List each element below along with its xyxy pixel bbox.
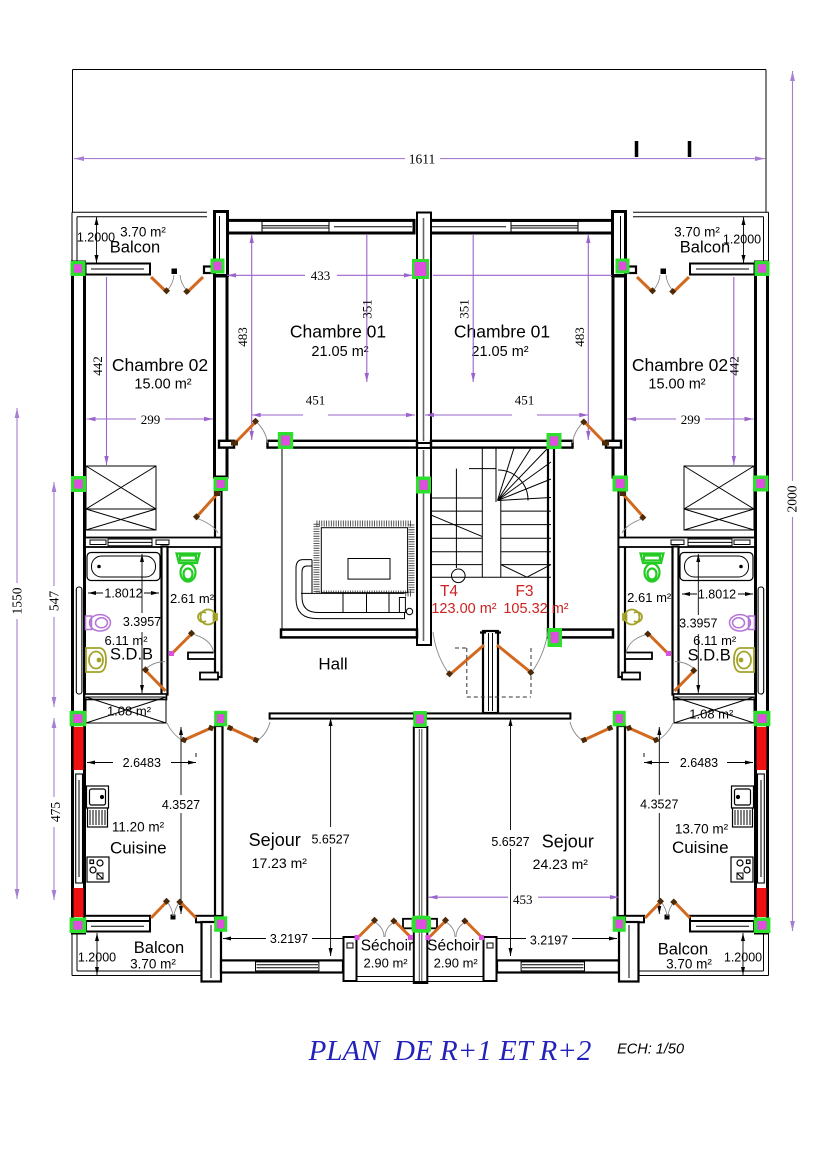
svg-text:3.70 m²: 3.70 m² <box>130 957 176 972</box>
svg-text:4.3527: 4.3527 <box>162 798 200 812</box>
svg-text:13.70 m²: 13.70 m² <box>675 822 729 837</box>
svg-text:475: 475 <box>48 802 63 823</box>
svg-text:Chambre 02: Chambre 02 <box>632 355 728 375</box>
svg-text:453: 453 <box>513 892 533 907</box>
svg-text:Balcon: Balcon <box>134 939 184 957</box>
svg-text:Séchoir: Séchoir <box>361 938 414 955</box>
svg-text:21.05 m²: 21.05 m² <box>471 344 528 360</box>
svg-text:1.8012: 1.8012 <box>104 587 142 601</box>
svg-text:S.D.B: S.D.B <box>110 646 153 664</box>
svg-text:Chambre 02: Chambre 02 <box>112 355 208 375</box>
svg-text:Séchoir: Séchoir <box>427 938 480 955</box>
svg-text:Cuisine: Cuisine <box>110 839 167 858</box>
svg-text:1550: 1550 <box>10 587 25 614</box>
svg-text:351: 351 <box>360 299 375 319</box>
svg-text:15.00 m²: 15.00 m² <box>134 377 191 393</box>
svg-text:Chambre 01: Chambre 01 <box>454 322 550 342</box>
svg-text:PLAN DE R+1 ET R+2: PLAN DE R+1 ET R+2 <box>308 1035 592 1067</box>
svg-text:105.32 m²: 105.32 m² <box>503 601 568 617</box>
svg-text:433: 433 <box>311 268 331 283</box>
svg-text:451: 451 <box>515 393 535 408</box>
svg-text:3.70 m²: 3.70 m² <box>674 225 720 240</box>
svg-text:11.20 m²: 11.20 m² <box>112 820 165 835</box>
svg-text:2.6483: 2.6483 <box>123 756 161 770</box>
svg-text:ECH: 1/50: ECH: 1/50 <box>617 1042 684 1058</box>
svg-text:3.70 m²: 3.70 m² <box>666 957 712 972</box>
svg-text:Balcon: Balcon <box>110 239 160 257</box>
svg-text:442: 442 <box>726 356 741 376</box>
svg-text:24.23 m²: 24.23 m² <box>533 856 589 872</box>
svg-text:T4: T4 <box>440 583 458 600</box>
svg-text:Hall: Hall <box>318 655 347 674</box>
svg-text:2.6483: 2.6483 <box>680 756 718 770</box>
svg-text:1611: 1611 <box>409 152 436 167</box>
svg-text:3.3957: 3.3957 <box>123 615 161 629</box>
svg-text:Sejour: Sejour <box>542 832 594 852</box>
svg-text:4.3527: 4.3527 <box>640 798 678 812</box>
svg-text:5.6527: 5.6527 <box>491 835 529 849</box>
svg-text:2.90 m²: 2.90 m² <box>364 956 409 971</box>
svg-text:Cuisine: Cuisine <box>672 838 729 857</box>
svg-text:299: 299 <box>141 412 161 427</box>
svg-text:2.90 m²: 2.90 m² <box>434 956 479 971</box>
svg-text:2.61 m²: 2.61 m² <box>170 591 215 606</box>
svg-text:17.23 m²: 17.23 m² <box>252 855 308 871</box>
svg-text:1.2000: 1.2000 <box>723 233 761 247</box>
svg-text:1.2000: 1.2000 <box>77 231 115 245</box>
svg-text:21.05 m²: 21.05 m² <box>311 344 368 360</box>
svg-text:3.70 m²: 3.70 m² <box>120 225 166 240</box>
svg-text:1.08 m²: 1.08 m² <box>689 707 734 722</box>
svg-text:483: 483 <box>572 327 587 347</box>
svg-text:1.2000: 1.2000 <box>724 951 762 965</box>
svg-text:5.6527: 5.6527 <box>311 832 349 846</box>
svg-text:123.00 m²: 123.00 m² <box>431 601 496 617</box>
svg-text:15.00 m²: 15.00 m² <box>648 377 705 393</box>
svg-text:Chambre 01: Chambre 01 <box>290 322 386 342</box>
svg-text:3.3957: 3.3957 <box>679 617 717 631</box>
svg-text:2000: 2000 <box>785 485 800 512</box>
svg-text:547: 547 <box>47 591 62 612</box>
svg-text:1.08 m²: 1.08 m² <box>107 704 152 719</box>
svg-text:1.2000: 1.2000 <box>78 951 116 965</box>
svg-text:1.8012: 1.8012 <box>698 588 736 602</box>
svg-text:3.2197: 3.2197 <box>270 932 308 946</box>
svg-text:2.61 m²: 2.61 m² <box>627 590 672 605</box>
svg-text:Sejour: Sejour <box>249 830 301 850</box>
svg-text:S.D.B: S.D.B <box>688 647 731 665</box>
svg-text:442: 442 <box>90 356 105 376</box>
svg-text:351: 351 <box>457 299 472 319</box>
svg-text:F3: F3 <box>515 583 533 600</box>
svg-text:299: 299 <box>681 412 701 427</box>
svg-text:451: 451 <box>306 393 326 408</box>
svg-text:3.2197: 3.2197 <box>530 934 568 948</box>
svg-text:483: 483 <box>235 327 250 347</box>
